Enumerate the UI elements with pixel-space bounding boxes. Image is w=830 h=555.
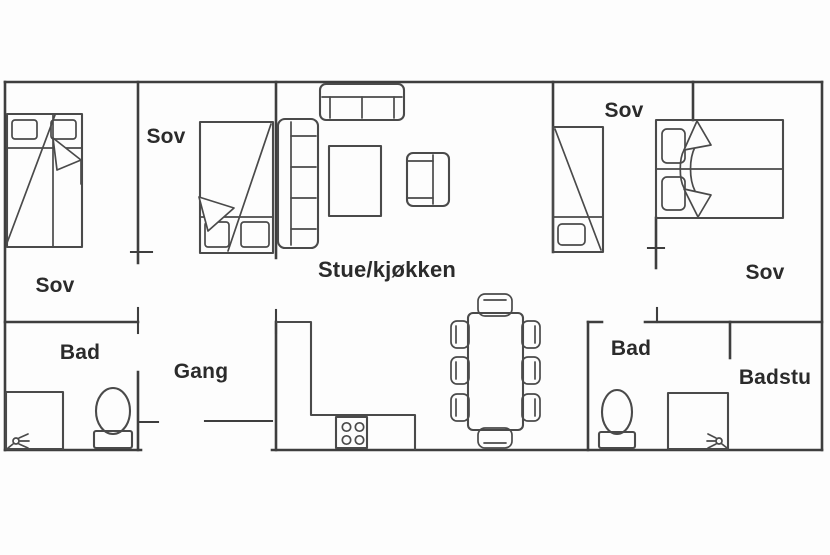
chair xyxy=(451,321,469,348)
shower-tray xyxy=(6,392,63,449)
chair xyxy=(522,357,540,384)
bed-double-left xyxy=(7,114,82,247)
room-label-hallway: Gang xyxy=(174,360,228,383)
sofa-top xyxy=(320,84,404,120)
dining-table xyxy=(468,313,523,430)
kitchen-counter xyxy=(276,322,415,450)
sauna-heater-outline xyxy=(668,393,728,449)
sauna-heater xyxy=(668,393,728,449)
coffee-table xyxy=(329,146,381,216)
pillow xyxy=(12,120,37,139)
stove xyxy=(336,417,367,448)
pillow xyxy=(558,224,585,245)
stove-burner xyxy=(342,436,350,444)
blanket-diagonal xyxy=(555,129,601,250)
bed-double-right xyxy=(656,120,783,218)
floor-plan-drawing: Sov Sov Stue/kjøkken Sov Sov Bad Gang Ba… xyxy=(0,0,830,555)
shower-head-icon xyxy=(8,434,29,448)
room-label-bedroom-right-large: Sov xyxy=(745,261,784,284)
stove-burner xyxy=(355,423,363,431)
stove-burner xyxy=(355,436,363,444)
sofa-left xyxy=(278,119,318,248)
bed-frame xyxy=(7,114,82,247)
room-label-bathroom-left: Bad xyxy=(60,341,100,364)
shower-outline xyxy=(6,392,63,449)
armchair xyxy=(407,153,449,206)
blanket-fold xyxy=(684,189,711,217)
sauna-heater-icon xyxy=(707,434,727,448)
bed-single-right xyxy=(553,127,603,252)
chair xyxy=(451,394,469,421)
toilet-right xyxy=(599,390,635,448)
chair xyxy=(522,394,540,421)
room-label-bedroom-middle: Sov xyxy=(146,125,185,148)
bed-double-middle xyxy=(199,122,273,253)
room-label-bedroom-left: Sov xyxy=(35,274,74,297)
toilet-bowl xyxy=(602,390,632,434)
pillow xyxy=(241,222,269,247)
blanket-fold xyxy=(53,138,81,170)
room-label-bathroom-right: Bad xyxy=(611,337,651,360)
chair xyxy=(451,357,469,384)
stove-burner xyxy=(342,423,350,431)
pillow xyxy=(51,120,76,139)
room-label-living-kitchen: Stue/kjøkken xyxy=(318,257,456,282)
room-label-sauna: Badstu xyxy=(739,366,811,389)
room-label-bedroom-right-small: Sov xyxy=(604,99,643,122)
chair xyxy=(522,321,540,348)
toilet-left xyxy=(94,388,132,448)
blanket-fold xyxy=(684,121,711,150)
floor-plan: Sov Sov Stue/kjøkken Sov Sov Bad Gang Ba… xyxy=(0,0,830,555)
blanket-diagonal xyxy=(7,115,55,243)
bed-frame xyxy=(200,122,273,253)
toilet-bowl xyxy=(96,388,130,434)
blanket-diagonal xyxy=(228,124,271,251)
dining-set xyxy=(451,294,540,448)
